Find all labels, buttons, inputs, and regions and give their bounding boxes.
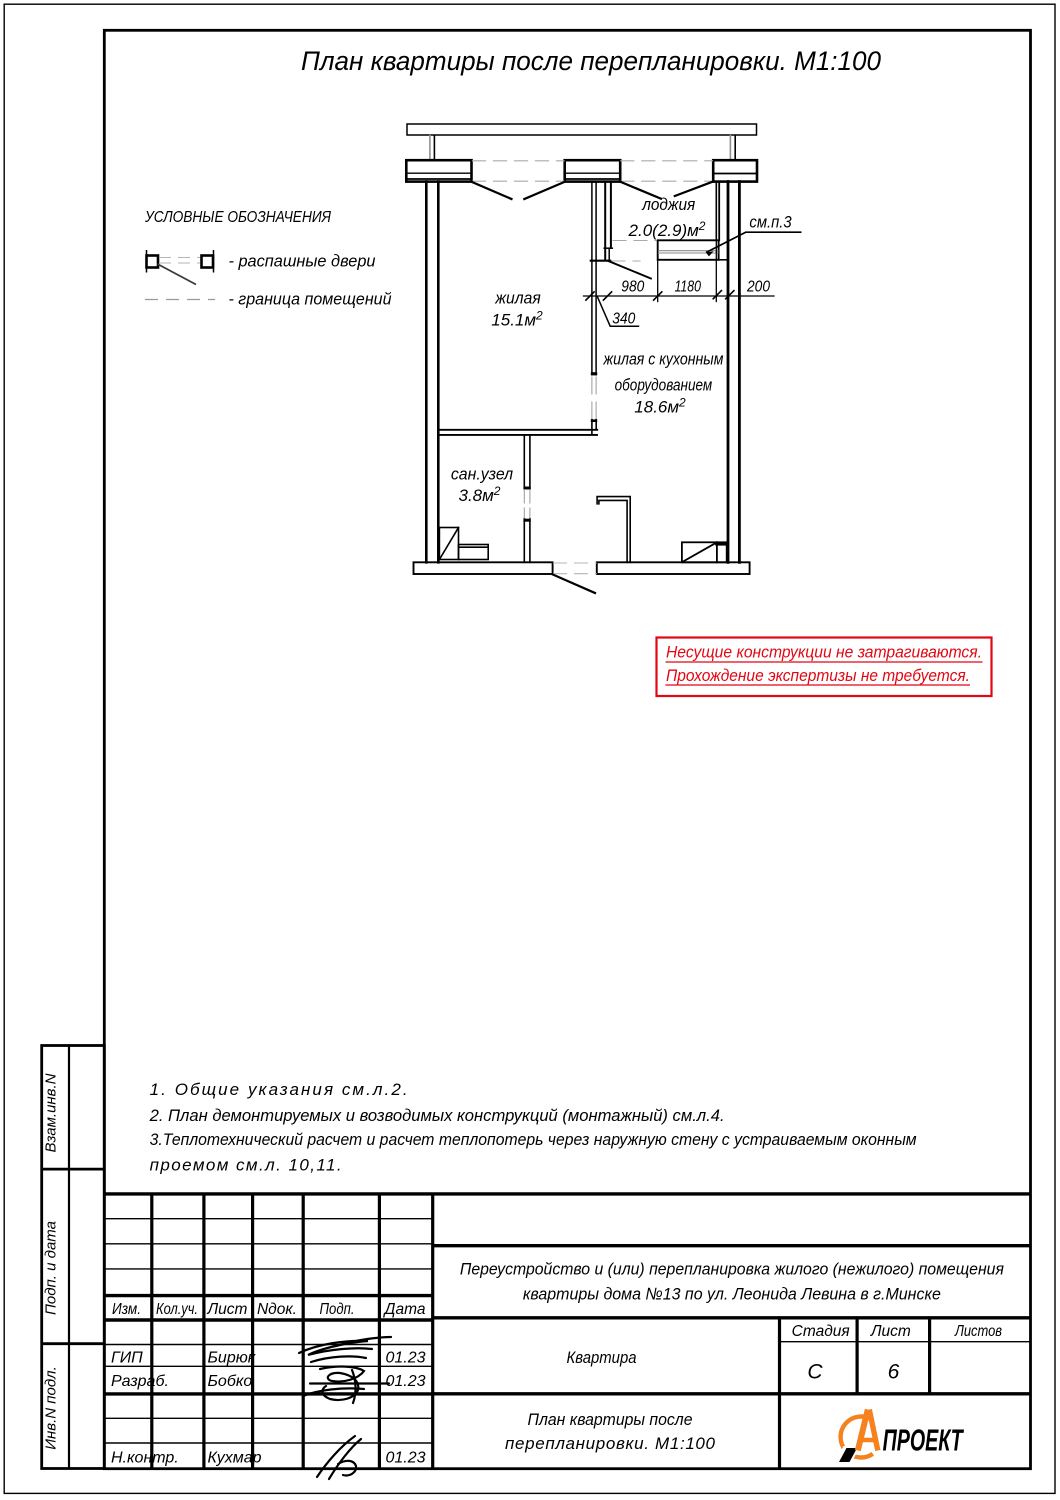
svg-text:ПРОЕКТ: ПРОЕКТ xyxy=(883,1422,965,1457)
svg-text:Бобко: Бобко xyxy=(208,1373,253,1390)
svg-text:квартиры дома №13 по ул. Леони: квартиры дома №13 по ул. Леонида Левина … xyxy=(523,1285,941,1304)
svg-text:Лист: Лист xyxy=(207,1301,248,1318)
svg-text:Nдок.: Nдок. xyxy=(257,1301,297,1318)
svg-text:2. План демонтируемых и возвод: 2. План демонтируемых и возводимых конст… xyxy=(149,1106,725,1125)
svg-text:Квартира: Квартира xyxy=(567,1348,637,1367)
svg-text:Переустройство и (или) перепла: Переустройство и (или) перепланировка жи… xyxy=(460,1260,1004,1279)
svg-text:3.Теплотехнический расчет и ра: 3.Теплотехнический расчет и расчет тепло… xyxy=(150,1130,917,1149)
svg-text:2.0(2.9)м2: 2.0(2.9)м2 xyxy=(628,219,706,240)
svg-text:лоджия: лоджия xyxy=(641,195,695,214)
svg-text:Бирюк: Бирюк xyxy=(208,1350,257,1367)
svg-text:жилая с кухонным: жилая с кухонным xyxy=(603,350,724,369)
svg-text:Кол.уч.: Кол.уч. xyxy=(156,1301,198,1318)
svg-text:Разраб.: Разраб. xyxy=(111,1373,169,1390)
svg-text:проемом см.л. 10,11.: проемом см.л. 10,11. xyxy=(150,1156,342,1175)
svg-text:980: 980 xyxy=(621,279,644,296)
svg-text:Подп. и дата: Подп. и дата xyxy=(43,1221,60,1315)
svg-text:200: 200 xyxy=(746,279,770,296)
svg-text:План квартиры после: План квартиры после xyxy=(528,1410,693,1429)
svg-text:Стадия: Стадия xyxy=(792,1323,850,1340)
svg-text:- распашные двери: - распашные двери xyxy=(229,252,377,271)
svg-text:План квартиры после перепланир: План квартиры после перепланировки. М1:1… xyxy=(301,46,881,76)
svg-text:01.23: 01.23 xyxy=(386,1450,426,1467)
svg-text:Взам.инв.N: Взам.инв.N xyxy=(43,1073,60,1152)
svg-text:Дата: Дата xyxy=(383,1301,426,1318)
svg-text:Листов: Листов xyxy=(954,1323,1002,1340)
svg-text:Изм.: Изм. xyxy=(112,1301,141,1318)
svg-text:УСЛОВНЫЕ ОБОЗНАЧЕНИЯ: УСЛОВНЫЕ ОБОЗНАЧЕНИЯ xyxy=(144,209,331,226)
svg-text:Н.контр.: Н.контр. xyxy=(111,1450,179,1467)
svg-text:см.п.3: см.п.3 xyxy=(749,214,792,232)
svg-text:Подп.: Подп. xyxy=(320,1301,355,1318)
svg-text:ГИП: ГИП xyxy=(111,1350,143,1367)
svg-text:оборудованием: оборудованием xyxy=(615,376,713,395)
svg-text:сан.узел: сан.узел xyxy=(451,465,514,484)
svg-text:Инв.N подл.: Инв.N подл. xyxy=(43,1366,60,1450)
svg-text:01.23: 01.23 xyxy=(386,1350,426,1367)
svg-text:Лист: Лист xyxy=(870,1323,911,1340)
svg-text:18.6м2: 18.6м2 xyxy=(634,396,686,417)
svg-text:перепланировки. М1:100: перепланировки. М1:100 xyxy=(505,1434,716,1453)
svg-text:1180: 1180 xyxy=(674,279,701,296)
svg-text:15.1м2: 15.1м2 xyxy=(491,309,543,330)
svg-text:- граница помещений: - граница помещений xyxy=(229,290,393,309)
svg-text:6: 6 xyxy=(888,1361,900,1384)
svg-text:01.23: 01.23 xyxy=(386,1373,426,1390)
svg-text:Кухмар: Кухмар xyxy=(208,1450,262,1467)
svg-text:Прохождение экспертизы не треб: Прохождение экспертизы не требуется. xyxy=(666,666,970,685)
svg-text:340: 340 xyxy=(612,311,635,328)
svg-text:Несущие конструкции не затраги: Несущие конструкции не затрагиваются. xyxy=(666,643,982,662)
svg-text:С: С xyxy=(807,1361,823,1384)
svg-text:жилая: жилая xyxy=(494,289,540,308)
